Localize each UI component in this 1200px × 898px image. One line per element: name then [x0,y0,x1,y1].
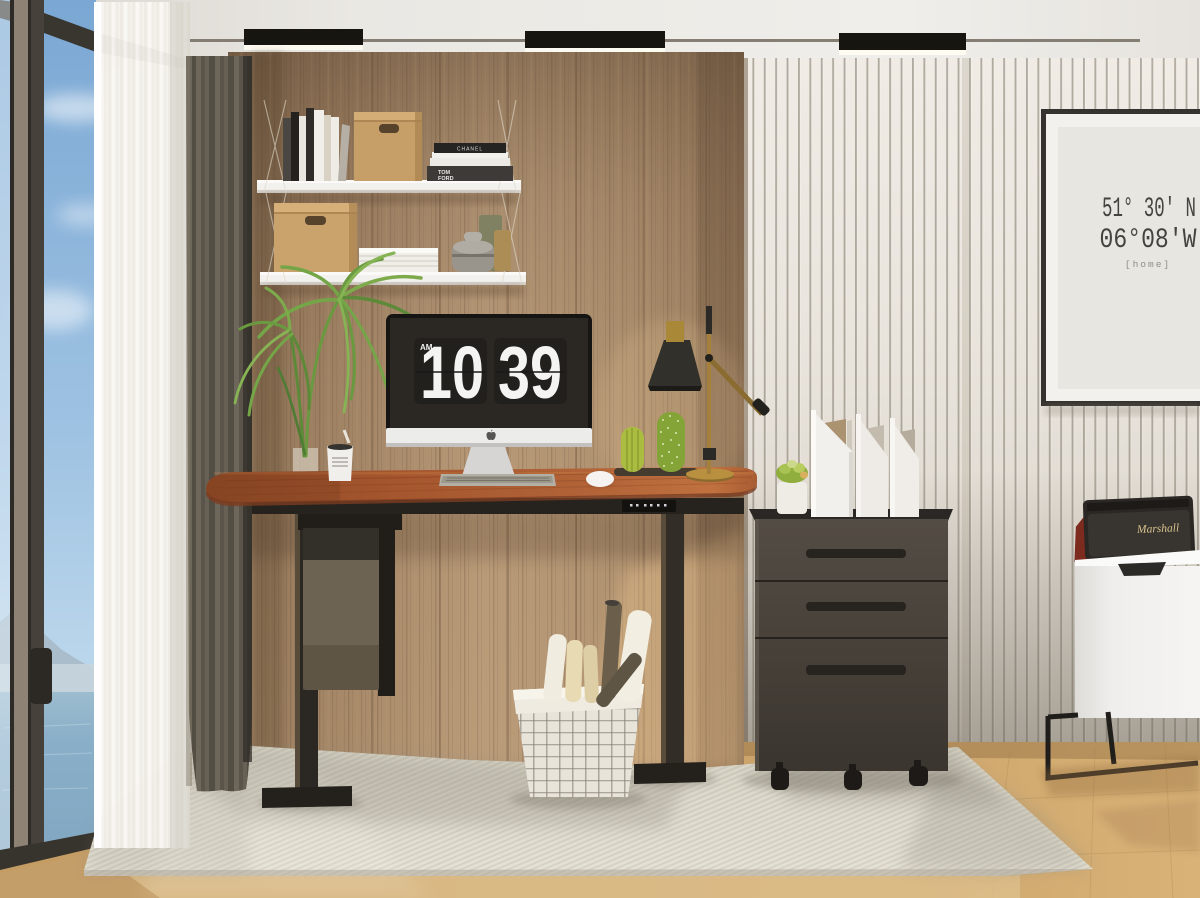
svg-text:06°08'W: 06°08'W [1100,225,1197,256]
svg-text:51° 30' N: 51° 30' N [1102,194,1196,225]
svg-text:Marshall: Marshall [1136,522,1180,536]
svg-text:[home]: [home] [1125,259,1171,270]
svg-text:CHANEL: CHANEL [457,147,483,153]
svg-text:FORD: FORD [438,176,454,182]
